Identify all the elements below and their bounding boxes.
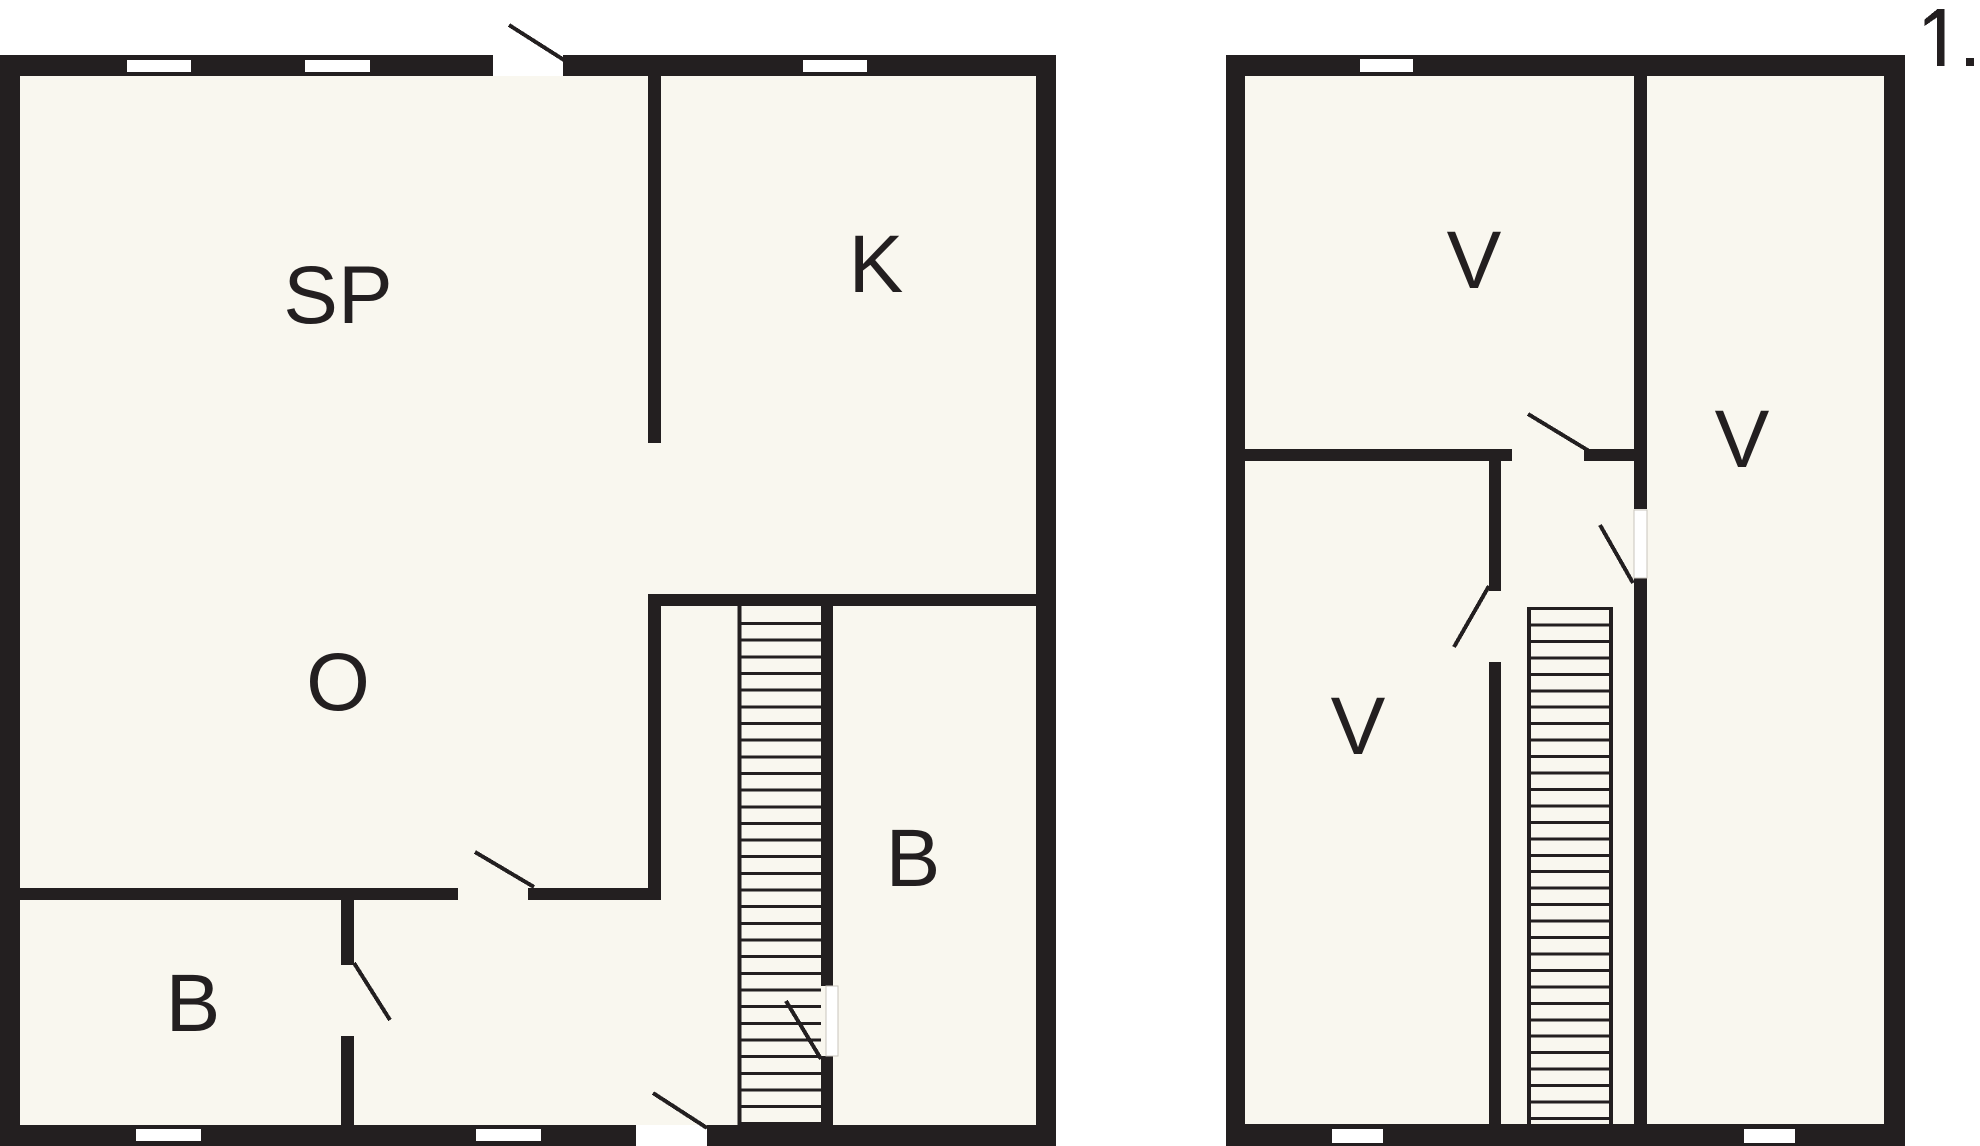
svg-text:V: V — [1715, 394, 1770, 485]
svg-text:V: V — [1447, 215, 1502, 306]
svg-text:V: V — [1331, 681, 1386, 772]
svg-text:B: B — [886, 813, 941, 904]
svg-text:B: B — [166, 958, 221, 1049]
svg-text:O: O — [306, 637, 370, 728]
svg-text:K: K — [849, 219, 904, 310]
svg-text:SP: SP — [283, 250, 392, 341]
